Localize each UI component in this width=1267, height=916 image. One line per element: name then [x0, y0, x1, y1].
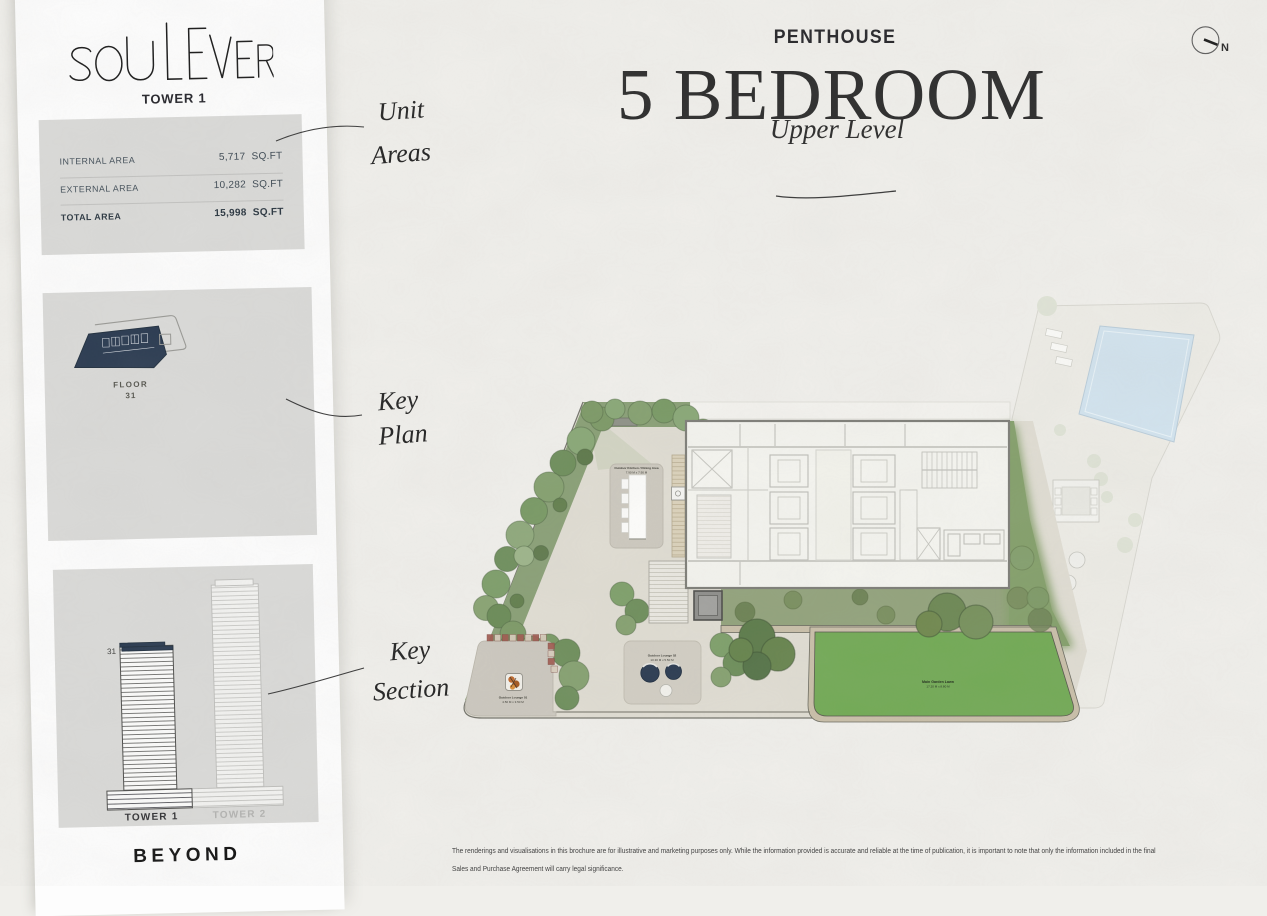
svg-text:10.30 M x 5.50 M: 10.30 M x 5.50 M: [650, 658, 674, 662]
svg-text:Outdoor Kitchen / Dining Area: Outdoor Kitchen / Dining Area: [614, 466, 659, 470]
svg-text:N: N: [1221, 42, 1229, 54]
svg-text:Outdoor Lounge 01: Outdoor Lounge 01: [499, 696, 528, 700]
svg-text:17.20 M x 8.80 M: 17.20 M x 8.80 M: [926, 685, 950, 689]
svg-text:4.50 M x 3.50 M: 4.50 M x 3.50 M: [502, 700, 524, 704]
svg-text:Outdoor Lounge 02: Outdoor Lounge 02: [648, 654, 677, 658]
svg-text:Main Garden Lawn: Main Garden Lawn: [922, 680, 954, 684]
svg-text:7.90 M x 7.90 M: 7.90 M x 7.90 M: [626, 471, 648, 475]
